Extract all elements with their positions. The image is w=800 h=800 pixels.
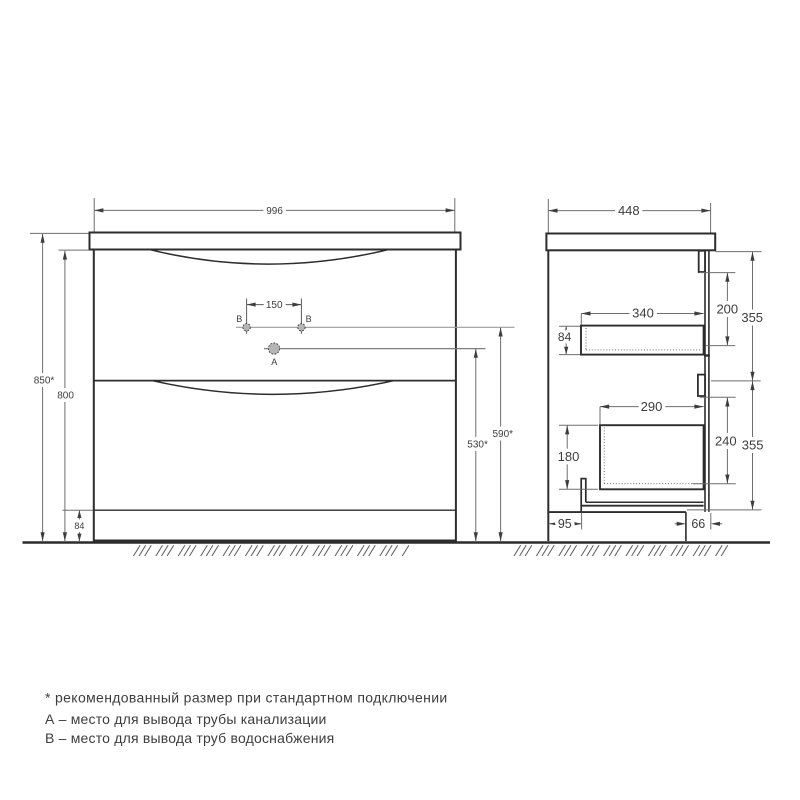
svg-text:448: 448 (618, 203, 640, 218)
svg-text:В – место для вывода труб водо: В – место для вывода труб водоснабжения (45, 730, 334, 746)
svg-text:355: 355 (742, 438, 764, 453)
svg-text:* рекомендованный размер при с: * рекомендованный размер при стандартном… (45, 690, 448, 706)
svg-text:95: 95 (558, 517, 572, 531)
svg-text:84: 84 (558, 330, 572, 344)
svg-text:355: 355 (741, 310, 763, 325)
svg-text:А: А (271, 357, 277, 367)
svg-text:996: 996 (266, 206, 283, 217)
svg-text:150: 150 (266, 300, 283, 311)
svg-text:В: В (306, 314, 312, 324)
svg-text:800: 800 (57, 390, 74, 401)
svg-text:66: 66 (691, 517, 705, 531)
svg-text:200: 200 (716, 302, 738, 317)
svg-text:180: 180 (558, 449, 580, 464)
svg-text:240: 240 (715, 434, 737, 449)
svg-text:340: 340 (632, 306, 654, 321)
svg-text:530*: 530* (467, 439, 488, 450)
svg-text:290: 290 (641, 399, 663, 414)
svg-text:84: 84 (74, 521, 84, 531)
svg-text:В: В (236, 314, 242, 324)
svg-text:А – место для вывода трубы кан: А – место для вывода трубы канализации (45, 711, 327, 727)
svg-text:850*: 850* (34, 375, 55, 386)
svg-text:590*: 590* (493, 429, 514, 440)
